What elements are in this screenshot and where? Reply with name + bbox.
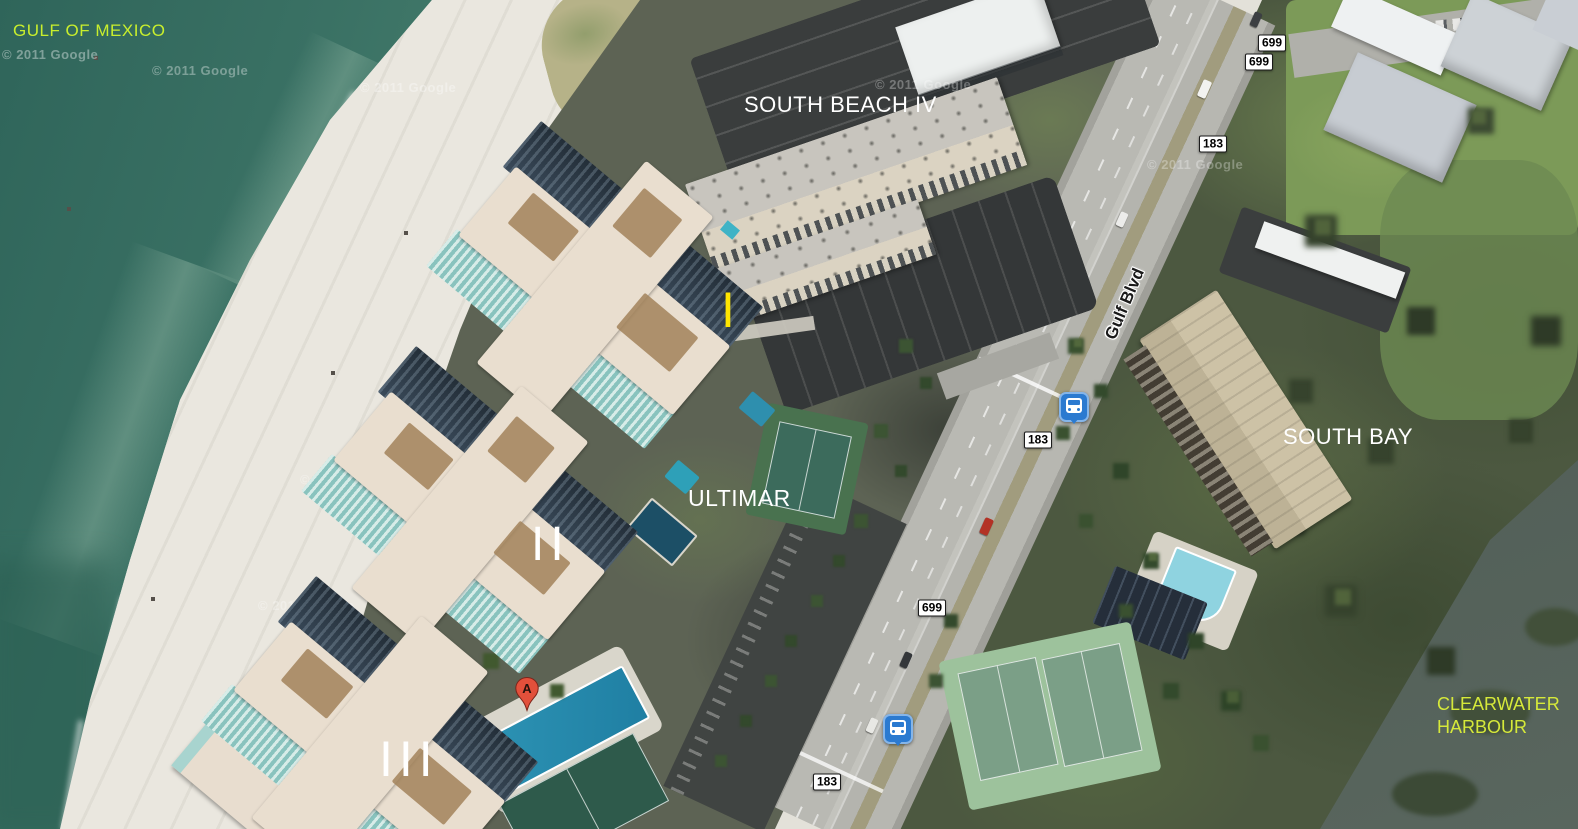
label-south-bay: SOUTH BAY — [1283, 424, 1413, 450]
copyright-watermark: © 2011 Google — [875, 77, 971, 92]
satellite-map-canvas[interactable]: © 2011 Google © 2011 Google © 2011 Googl… — [0, 0, 1578, 829]
route-shield-183: 183 — [1199, 136, 1227, 153]
route-shield-699: 699 — [1245, 54, 1273, 71]
copyright-watermark: © 2011 Google — [1147, 157, 1243, 172]
tower-marker-2: II — [531, 517, 570, 572]
tower-marker-3: III — [379, 730, 439, 788]
bus-glyph — [1066, 398, 1082, 413]
tower-marker-1: I — [721, 281, 735, 339]
label-ultimar: ULTIMAR — [688, 485, 791, 512]
copyright-watermark: © 2011 Google — [360, 80, 456, 95]
label-clearwater-harbour: CLEARWATER HARBOUR — [1437, 693, 1560, 739]
copyright-watermark: © 2011 Google — [152, 63, 248, 78]
label-clearwater-line2: HARBOUR — [1437, 716, 1560, 739]
route-shield-699: 699 — [918, 600, 946, 617]
copyright-watermark: © 2011 Google — [2, 47, 98, 62]
route-shield-699: 699 — [1258, 35, 1286, 52]
marsh-island — [1392, 772, 1478, 816]
bus-stop-icon[interactable] — [883, 714, 913, 744]
label-south-beach-iv: SOUTH BEACH IV — [744, 92, 937, 118]
pin-label: A — [522, 681, 532, 696]
route-shield-183: 183 — [1024, 432, 1052, 449]
place-marker-a[interactable]: A — [514, 676, 540, 712]
grass-field — [1380, 160, 1578, 420]
bus-stop-icon[interactable] — [1059, 392, 1089, 422]
bus-glyph — [890, 720, 906, 735]
tree-cluster-light — [0, 0, 2, 2]
marsh-island — [1525, 608, 1578, 646]
route-shield-183: 183 — [813, 774, 841, 791]
label-clearwater-line1: CLEARWATER — [1437, 693, 1560, 716]
label-gulf-of-mexico: GULF OF MEXICO — [13, 21, 165, 41]
